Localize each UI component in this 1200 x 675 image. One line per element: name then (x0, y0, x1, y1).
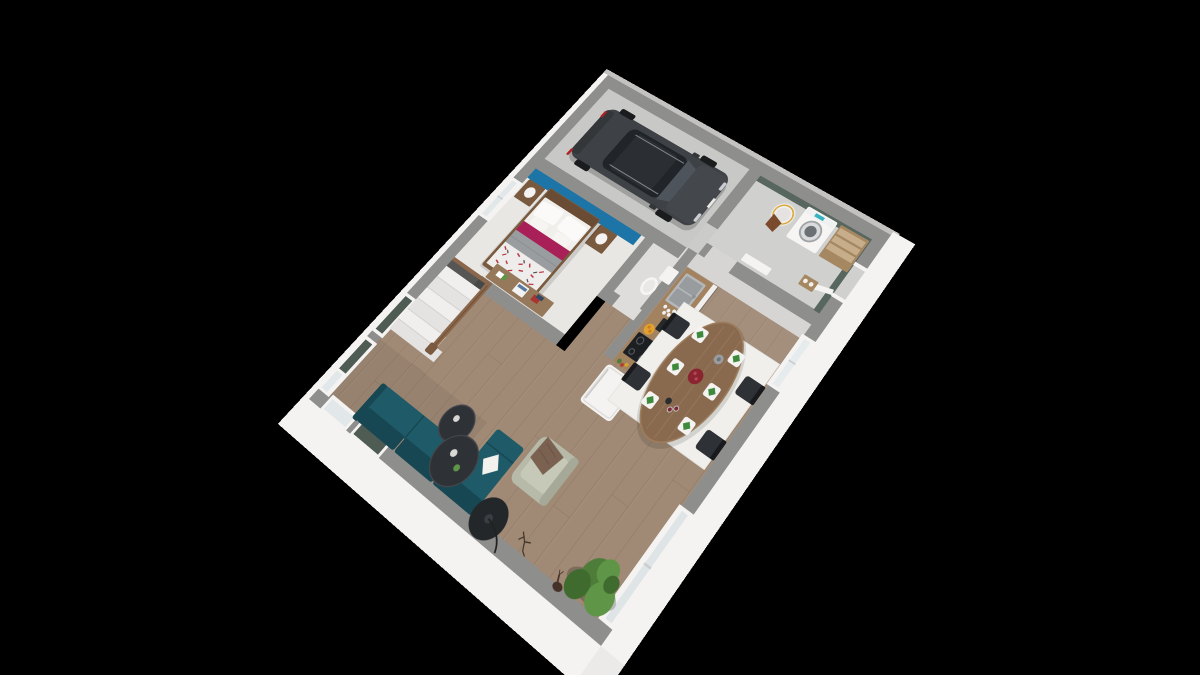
floorplan-svg (309, 75, 891, 646)
floor-plan-stage (0, 0, 1200, 675)
